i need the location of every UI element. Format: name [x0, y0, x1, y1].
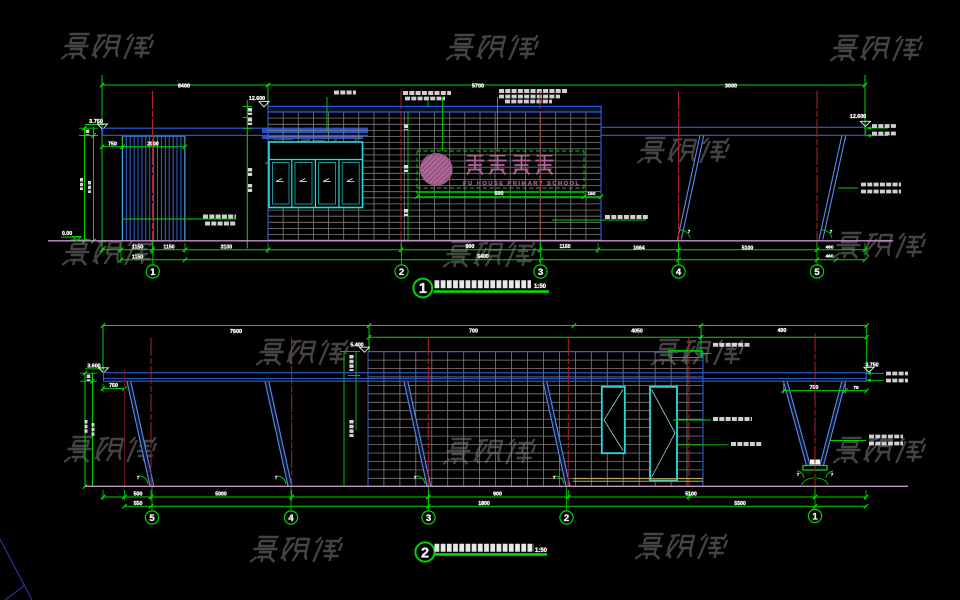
svg-text:FU HOUSE PRIMARY SCHOOL: FU HOUSE PRIMARY SCHOOL — [463, 181, 579, 187]
svg-text:460: 460 — [825, 244, 833, 250]
svg-text:1150: 1150 — [559, 244, 570, 250]
svg-text:1800: 1800 — [478, 501, 490, 507]
svg-text:400: 400 — [778, 328, 787, 334]
svg-text:1:50: 1:50 — [534, 284, 547, 290]
svg-text:5700: 5700 — [472, 84, 484, 90]
svg-text:460: 460 — [825, 254, 833, 260]
svg-text:1150: 1150 — [163, 244, 174, 250]
svg-text:1664: 1664 — [633, 246, 645, 252]
svg-text:1: 1 — [812, 511, 818, 522]
svg-text:900: 900 — [466, 244, 475, 250]
svg-text:75: 75 — [853, 385, 859, 391]
svg-text:700: 700 — [469, 329, 478, 335]
svg-text:0.00: 0.00 — [62, 231, 72, 237]
svg-text:12.600: 12.600 — [850, 114, 866, 120]
svg-text:2000: 2000 — [147, 141, 159, 147]
svg-text:7: 7 — [797, 472, 800, 477]
svg-text:1:50: 1:50 — [535, 548, 548, 554]
svg-text:1: 1 — [419, 281, 427, 297]
svg-text:5400: 5400 — [477, 254, 489, 260]
svg-text:5: 5 — [814, 267, 820, 278]
svg-text:8400: 8400 — [178, 84, 190, 90]
svg-text:12.600: 12.600 — [249, 96, 265, 102]
svg-text:900: 900 — [493, 492, 502, 498]
svg-text:4050: 4050 — [631, 329, 643, 335]
svg-text:7: 7 — [688, 229, 691, 234]
svg-text:3: 3 — [538, 267, 543, 278]
svg-text:750: 750 — [109, 383, 118, 389]
svg-text:1150: 1150 — [132, 254, 143, 260]
svg-text:3100: 3100 — [221, 244, 233, 250]
svg-text:500: 500 — [134, 492, 143, 498]
svg-text:3: 3 — [426, 513, 431, 524]
svg-text:7: 7 — [831, 472, 834, 477]
svg-text:5100: 5100 — [742, 246, 754, 252]
svg-text:600: 600 — [495, 191, 504, 197]
svg-text:7: 7 — [830, 229, 833, 234]
svg-text:150: 150 — [587, 191, 595, 197]
svg-text:5100: 5100 — [685, 492, 697, 498]
svg-text:7600: 7600 — [230, 329, 242, 335]
svg-text:3000: 3000 — [725, 84, 737, 90]
svg-text:5: 5 — [149, 513, 155, 524]
svg-text:5000: 5000 — [215, 492, 227, 498]
svg-text:550: 550 — [134, 501, 143, 507]
svg-text:750: 750 — [108, 141, 117, 147]
svg-text:1150: 1150 — [132, 244, 143, 250]
svg-text:1: 1 — [150, 267, 156, 278]
svg-text:4: 4 — [288, 513, 294, 524]
svg-text:2: 2 — [421, 545, 429, 561]
svg-text:2: 2 — [399, 267, 404, 278]
svg-text:2: 2 — [564, 513, 569, 524]
svg-text:700: 700 — [810, 385, 819, 391]
svg-text:5500: 5500 — [734, 501, 746, 507]
svg-text:4: 4 — [676, 267, 682, 278]
